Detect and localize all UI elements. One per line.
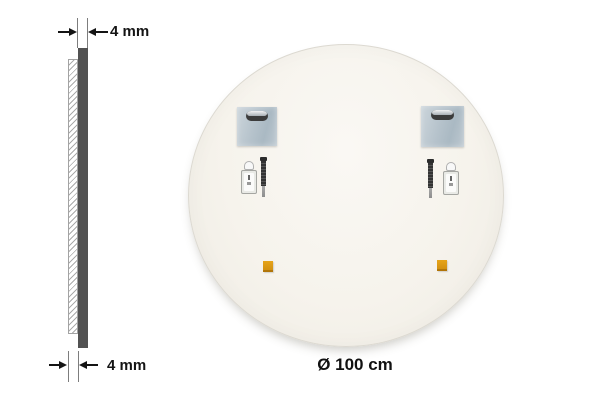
bottle-mark — [247, 182, 251, 185]
bottle-label — [446, 174, 456, 192]
product-diagram: 4 mm 4 mm — [0, 0, 600, 400]
bottle-body — [241, 170, 257, 194]
bottle-mark — [248, 175, 250, 180]
screw-shaft — [428, 163, 433, 188]
screw-tip — [262, 186, 265, 197]
mounting-plate-right-icon — [421, 106, 464, 147]
keyhole-slot-icon — [431, 110, 454, 120]
slot-rim — [432, 110, 453, 115]
mirror-back-circle — [188, 44, 504, 347]
bottle-cap — [244, 161, 254, 170]
bottle-body — [443, 171, 459, 195]
keyhole-slot-icon — [246, 111, 268, 121]
slot-rim — [247, 111, 267, 116]
mounting-plate-left-icon — [237, 107, 277, 146]
bottle-mark — [450, 176, 452, 181]
screw-shaft — [261, 161, 266, 186]
adhesive-pad-left-icon — [263, 261, 273, 272]
bottle-mark — [449, 183, 453, 186]
bottle-label — [244, 173, 254, 191]
adhesive-pad-right-icon — [437, 260, 447, 271]
bottle-cap — [446, 162, 456, 171]
mirror-back-group: Ø 100 cm — [0, 0, 600, 400]
diameter-label: Ø 100 cm — [190, 355, 520, 375]
screw-tip — [429, 188, 432, 198]
